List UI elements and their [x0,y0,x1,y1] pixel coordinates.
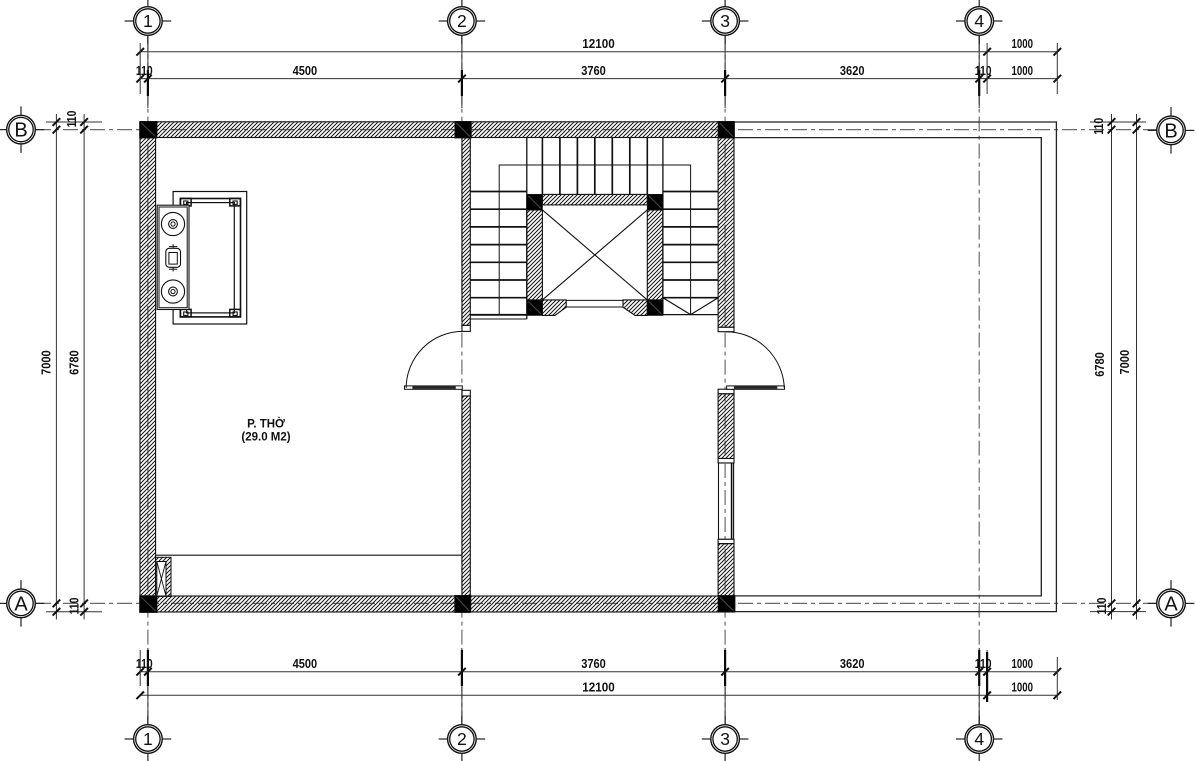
svg-text:2: 2 [457,11,467,31]
svg-text:1: 1 [143,11,153,31]
svg-text:3: 3 [720,11,730,31]
svg-text:1000: 1000 [1011,680,1033,695]
svg-text:110: 110 [64,111,79,128]
svg-text:110: 110 [975,656,992,671]
svg-text:110: 110 [1094,598,1109,615]
svg-text:6780: 6780 [1092,352,1107,377]
svg-text:3760: 3760 [581,656,606,671]
svg-text:12100: 12100 [582,36,615,51]
svg-text:110: 110 [975,63,992,78]
svg-text:2: 2 [457,729,467,749]
svg-text:B: B [14,120,27,142]
svg-text:(29.0 M2): (29.0 M2) [241,432,290,444]
svg-text:3620: 3620 [840,63,865,78]
svg-text:1000: 1000 [1011,656,1033,671]
svg-text:1000: 1000 [1011,63,1033,78]
svg-text:4500: 4500 [293,63,318,78]
svg-text:P. THỜ: P. THỜ [247,418,285,431]
svg-text:6780: 6780 [67,350,82,375]
svg-text:110: 110 [136,63,153,78]
svg-text:B: B [1164,121,1177,143]
svg-text:3: 3 [720,729,730,749]
svg-text:12100: 12100 [582,680,615,695]
svg-text:110: 110 [136,656,153,671]
svg-text:1000: 1000 [1011,36,1033,51]
svg-text:A: A [14,594,28,616]
svg-text:110: 110 [1091,118,1106,135]
svg-text:3760: 3760 [581,63,606,78]
svg-text:1: 1 [143,729,153,749]
svg-text:3620: 3620 [840,656,865,671]
svg-text:7000: 7000 [39,350,54,375]
svg-text:4: 4 [974,11,984,31]
svg-text:110: 110 [67,598,82,615]
svg-text:4: 4 [974,729,984,749]
svg-text:7000: 7000 [1117,350,1132,375]
svg-text:4500: 4500 [293,656,318,671]
svg-text:A: A [1164,594,1178,616]
